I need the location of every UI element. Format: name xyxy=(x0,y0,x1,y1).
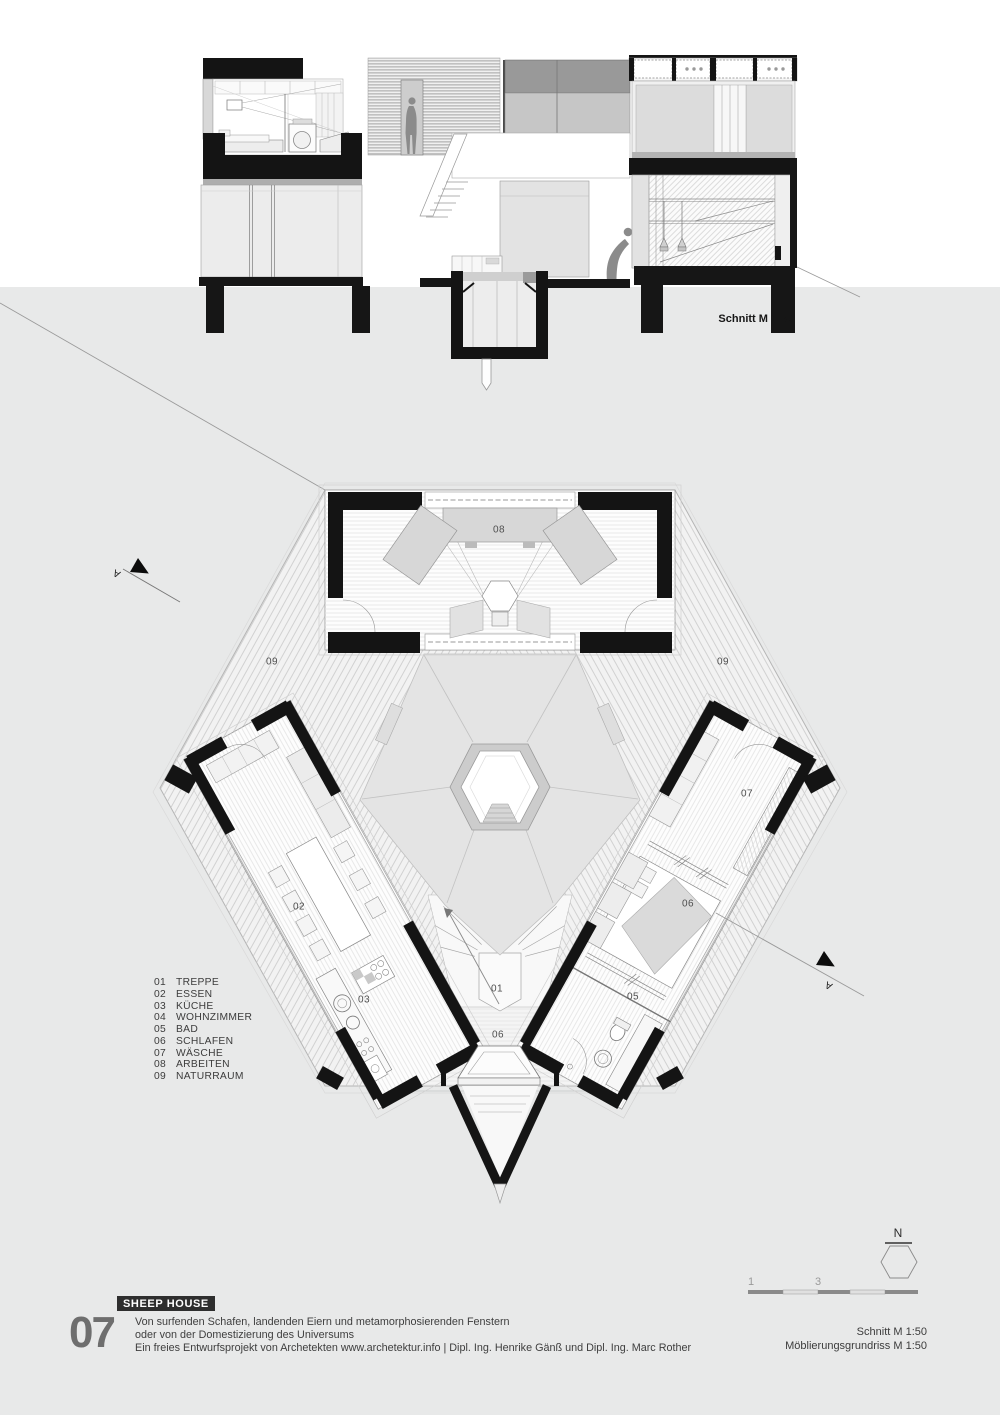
room-label-07: 07 xyxy=(741,789,753,800)
legend-row: 02ESSEN xyxy=(154,989,252,1001)
description-line-3: Ein freies Entwurfsprojekt von Archetekt… xyxy=(135,1342,715,1355)
section-scale-label: Schnitt M 1:50 xyxy=(663,313,793,325)
scale-line-1: Schnitt M 1:50 xyxy=(785,1326,927,1340)
floor-plan xyxy=(0,303,864,1203)
stilt-leg xyxy=(641,285,663,333)
bending-person-silhouette xyxy=(607,228,633,281)
legend-row: 06SCHLAFEN xyxy=(154,1036,252,1048)
legend-row: 05BAD xyxy=(154,1024,252,1036)
room-label-05: 05 xyxy=(627,992,639,1003)
room-label-06-wing: 06 xyxy=(682,899,694,910)
legend-row: 07WÄSCHE xyxy=(154,1048,252,1060)
room-label-09-right: 09 xyxy=(717,657,729,668)
cellar-room xyxy=(649,175,775,268)
section-marker-left xyxy=(123,558,180,602)
project-description: Von surfenden Schafen, landenden Eiern u… xyxy=(135,1316,715,1356)
legend-row: 01TREPPE xyxy=(154,977,252,989)
sheet-number: 07 xyxy=(69,1311,114,1355)
entrance-stair-below xyxy=(453,1086,547,1203)
scale-bar xyxy=(748,1290,918,1294)
room-legend: 01TREPPE 02ESSEN 03KÜCHE 04WOHNZIMMER 05… xyxy=(154,977,252,1083)
project-title-badge: SHEEP HOUSE xyxy=(117,1296,215,1311)
legend-row: 04WOHNZIMMER xyxy=(154,1012,252,1024)
stilt-leg xyxy=(771,285,795,333)
north-hexagon-icon xyxy=(881,1246,917,1278)
building-section xyxy=(199,55,860,390)
wing-work-room xyxy=(319,485,681,655)
room-label-02: 02 xyxy=(293,902,305,913)
legend-row: 03KÜCHE xyxy=(154,1001,252,1013)
scalebar-number-1: 1 xyxy=(748,1276,754,1288)
room-label-01: 01 xyxy=(491,984,503,995)
room-label-08: 08 xyxy=(493,525,505,536)
scalebar-number-3: 3 xyxy=(815,1276,821,1288)
north-indicator xyxy=(881,1243,917,1278)
description-line-1: Von surfenden Schafen, landenden Eiern u… xyxy=(135,1316,715,1329)
north-label: N xyxy=(894,1226,903,1240)
legend-row: 09NATURRAUM xyxy=(154,1071,252,1083)
section-cut-line xyxy=(0,303,325,490)
room-label-03: 03 xyxy=(358,995,370,1006)
drawing-sheet: Schnitt M 1:50 08 09 09 07 02 06 01 03 0… xyxy=(0,0,1000,1415)
legend-row: 08ARBEITEN xyxy=(154,1059,252,1071)
scale-line-2: Möblierungsgrundriss M 1:50 xyxy=(785,1340,927,1354)
description-line-2: oder von der Domestizierung des Universu… xyxy=(135,1329,715,1342)
stilt-leg xyxy=(352,286,370,333)
architectural-drawing-canvas xyxy=(0,0,1000,1415)
projector xyxy=(227,100,242,110)
room-label-06-deck: 06 xyxy=(492,1030,504,1041)
room-label-09-left: 09 xyxy=(266,657,278,668)
sunken-entrance-shaft xyxy=(451,271,548,390)
stilt-leg xyxy=(206,286,224,333)
drawing-scales: Schnitt M 1:50 Möblierungsgrundriss M 1:… xyxy=(785,1326,927,1353)
